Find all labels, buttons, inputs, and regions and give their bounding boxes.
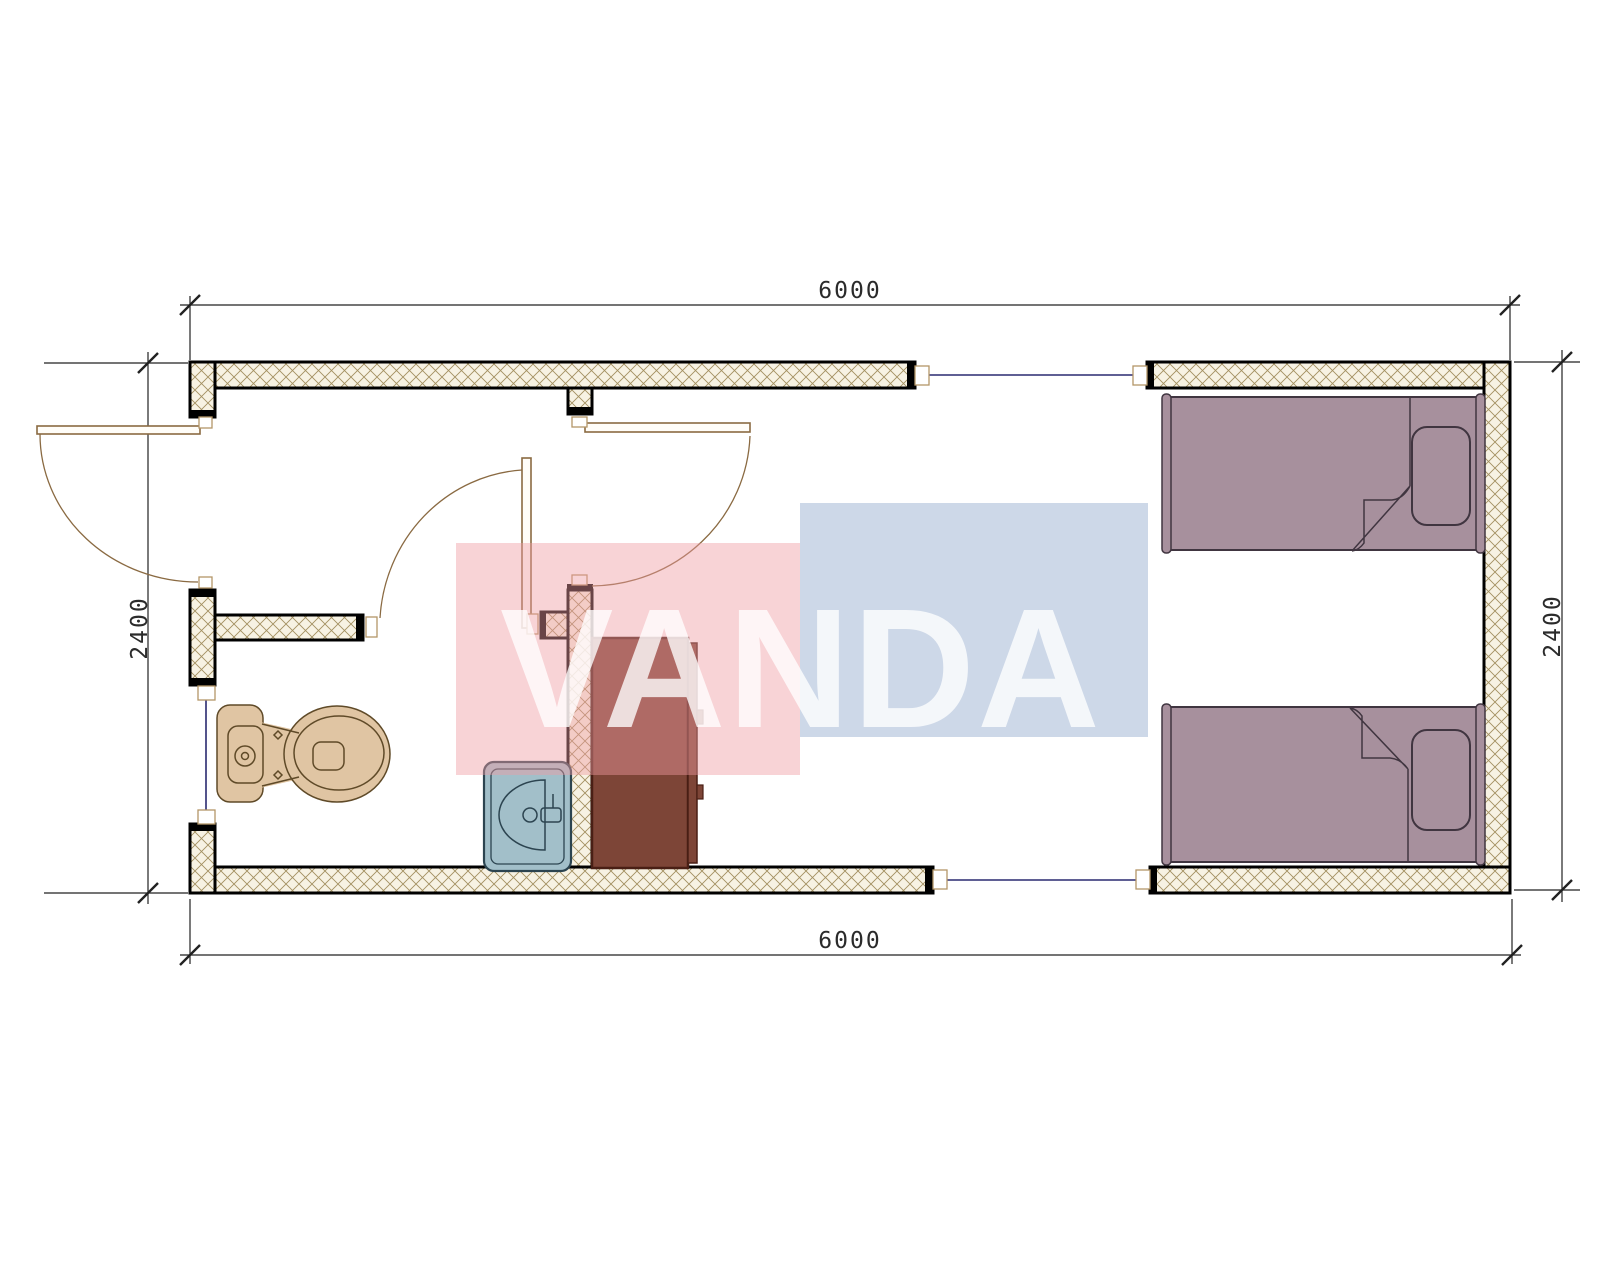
wardrobe-hinge-bottom	[697, 785, 703, 799]
wall-bottom-right	[1150, 867, 1510, 893]
toilet-tank	[217, 705, 263, 802]
sink	[484, 762, 571, 871]
bed-top-pillow	[1412, 427, 1470, 525]
bed-top-headboard	[1162, 394, 1171, 553]
bed-bottom-headboard	[1162, 704, 1171, 865]
watermark: VANDA	[456, 503, 1148, 775]
wall-top-left	[190, 362, 915, 388]
bed-bottom-footboard	[1476, 704, 1485, 865]
watermark-text: VANDA	[500, 574, 1102, 764]
bed-bottom-pillow	[1412, 730, 1470, 830]
bed-top-footboard	[1476, 394, 1485, 553]
dim-text-top: 6000	[818, 278, 881, 304]
wall-top-right	[1147, 362, 1510, 388]
dim-text-right: 2400	[1540, 594, 1566, 657]
corridor-door-leaf	[585, 423, 750, 432]
wall-left-top-stub	[190, 362, 215, 417]
sink-counter	[484, 762, 571, 871]
wall-left-low	[190, 824, 215, 893]
wall-bathroom-tbar	[215, 615, 363, 640]
floor-plan-svg: 6000 6000 2400 2400	[0, 0, 1600, 1280]
entry-door-arc	[40, 434, 198, 582]
wall-left-mid	[190, 590, 215, 685]
entry-door-leaf	[37, 426, 200, 434]
dim-text-left: 2400	[127, 596, 153, 659]
bed-top	[1162, 394, 1485, 553]
toilet-bowl	[284, 706, 390, 802]
bed-bottom	[1162, 704, 1485, 865]
dim-text-bottom: 6000	[818, 928, 881, 954]
wall-right	[1484, 362, 1510, 893]
toilet	[217, 705, 390, 802]
floor-plan-page: 6000 6000 2400 2400	[0, 0, 1600, 1280]
